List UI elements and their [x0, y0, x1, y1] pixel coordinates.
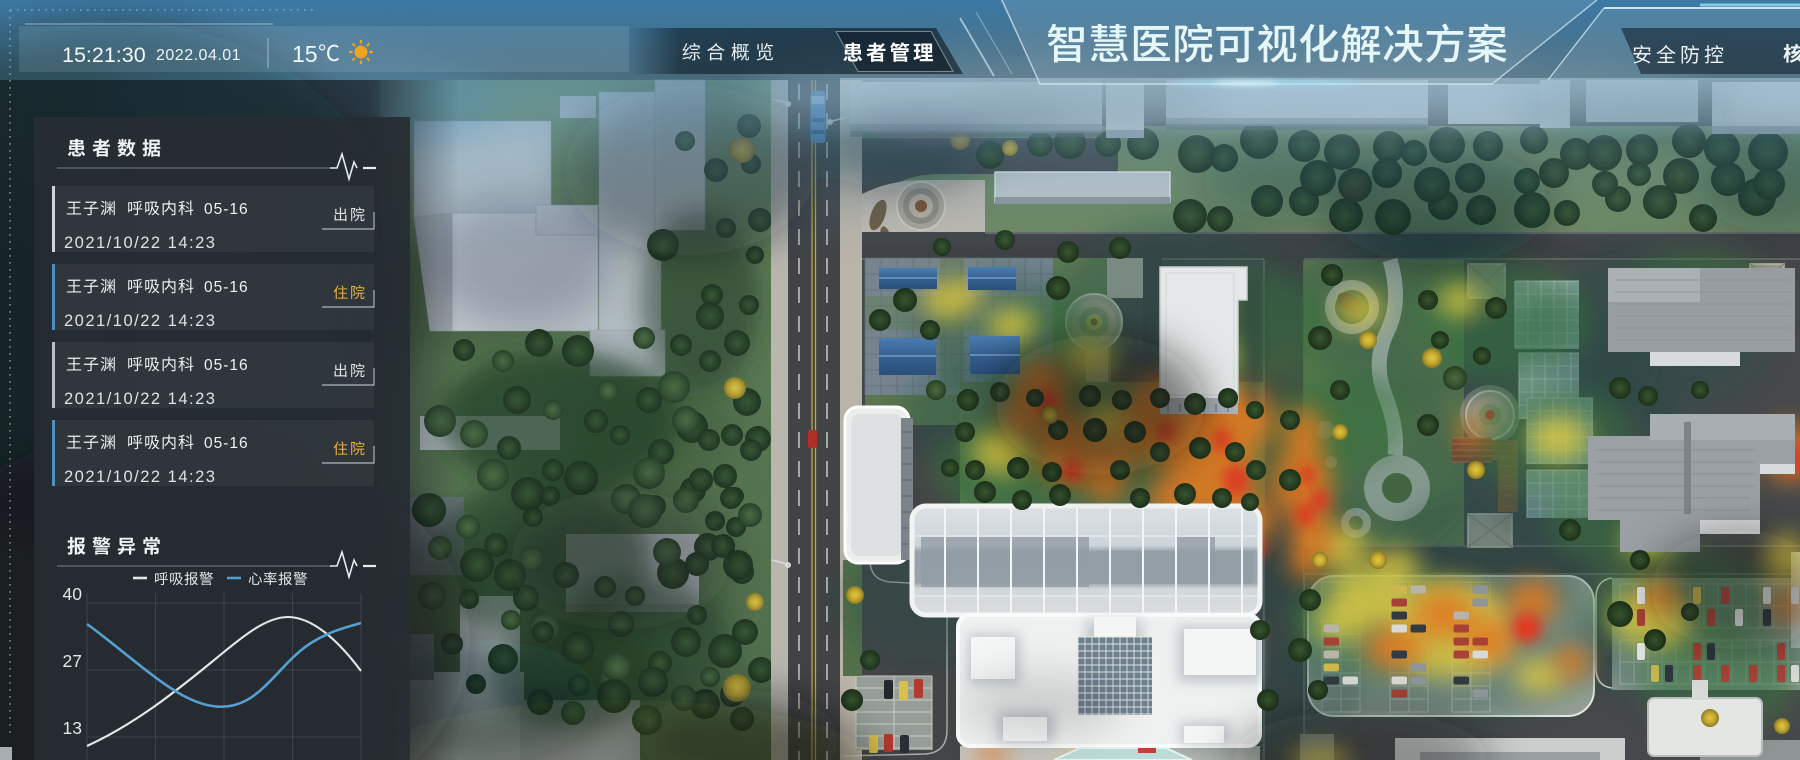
svg-text:05-16: 05-16 — [204, 279, 249, 296]
svg-text:2021/10/22 14:23: 2021/10/22 14:23 — [64, 234, 216, 252]
svg-text:2021/10/22 14:23: 2021/10/22 14:23 — [64, 390, 216, 408]
svg-text:05-16: 05-16 — [204, 357, 249, 374]
svg-text:2022.04.01: 2022.04.01 — [156, 47, 241, 64]
svg-text:2021/10/22 14:23: 2021/10/22 14:23 — [64, 312, 216, 330]
svg-text:15:21:30: 15:21:30 — [62, 43, 146, 67]
svg-text:05-16: 05-16 — [204, 435, 249, 452]
svg-text:27: 27 — [63, 651, 82, 671]
svg-text:2021/10/22 14:23: 2021/10/22 14:23 — [64, 468, 216, 486]
svg-text:05-16: 05-16 — [204, 201, 249, 218]
svg-text:15: 15 — [292, 41, 318, 67]
svg-text:13: 13 — [63, 718, 82, 738]
svg-text:40: 40 — [63, 584, 83, 604]
